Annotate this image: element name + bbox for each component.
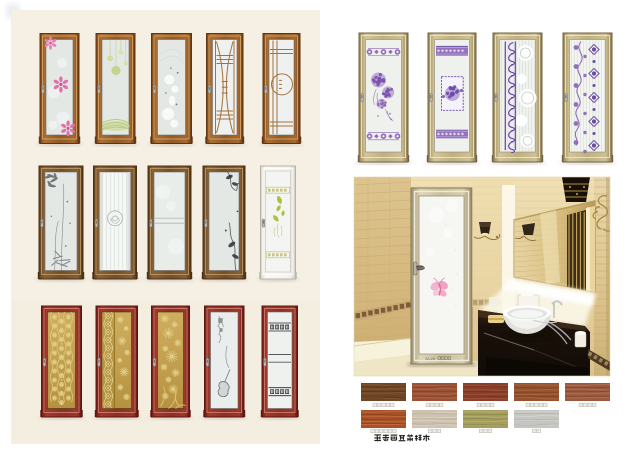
svg-text:2A-28: 2A-28 [425, 357, 435, 361]
